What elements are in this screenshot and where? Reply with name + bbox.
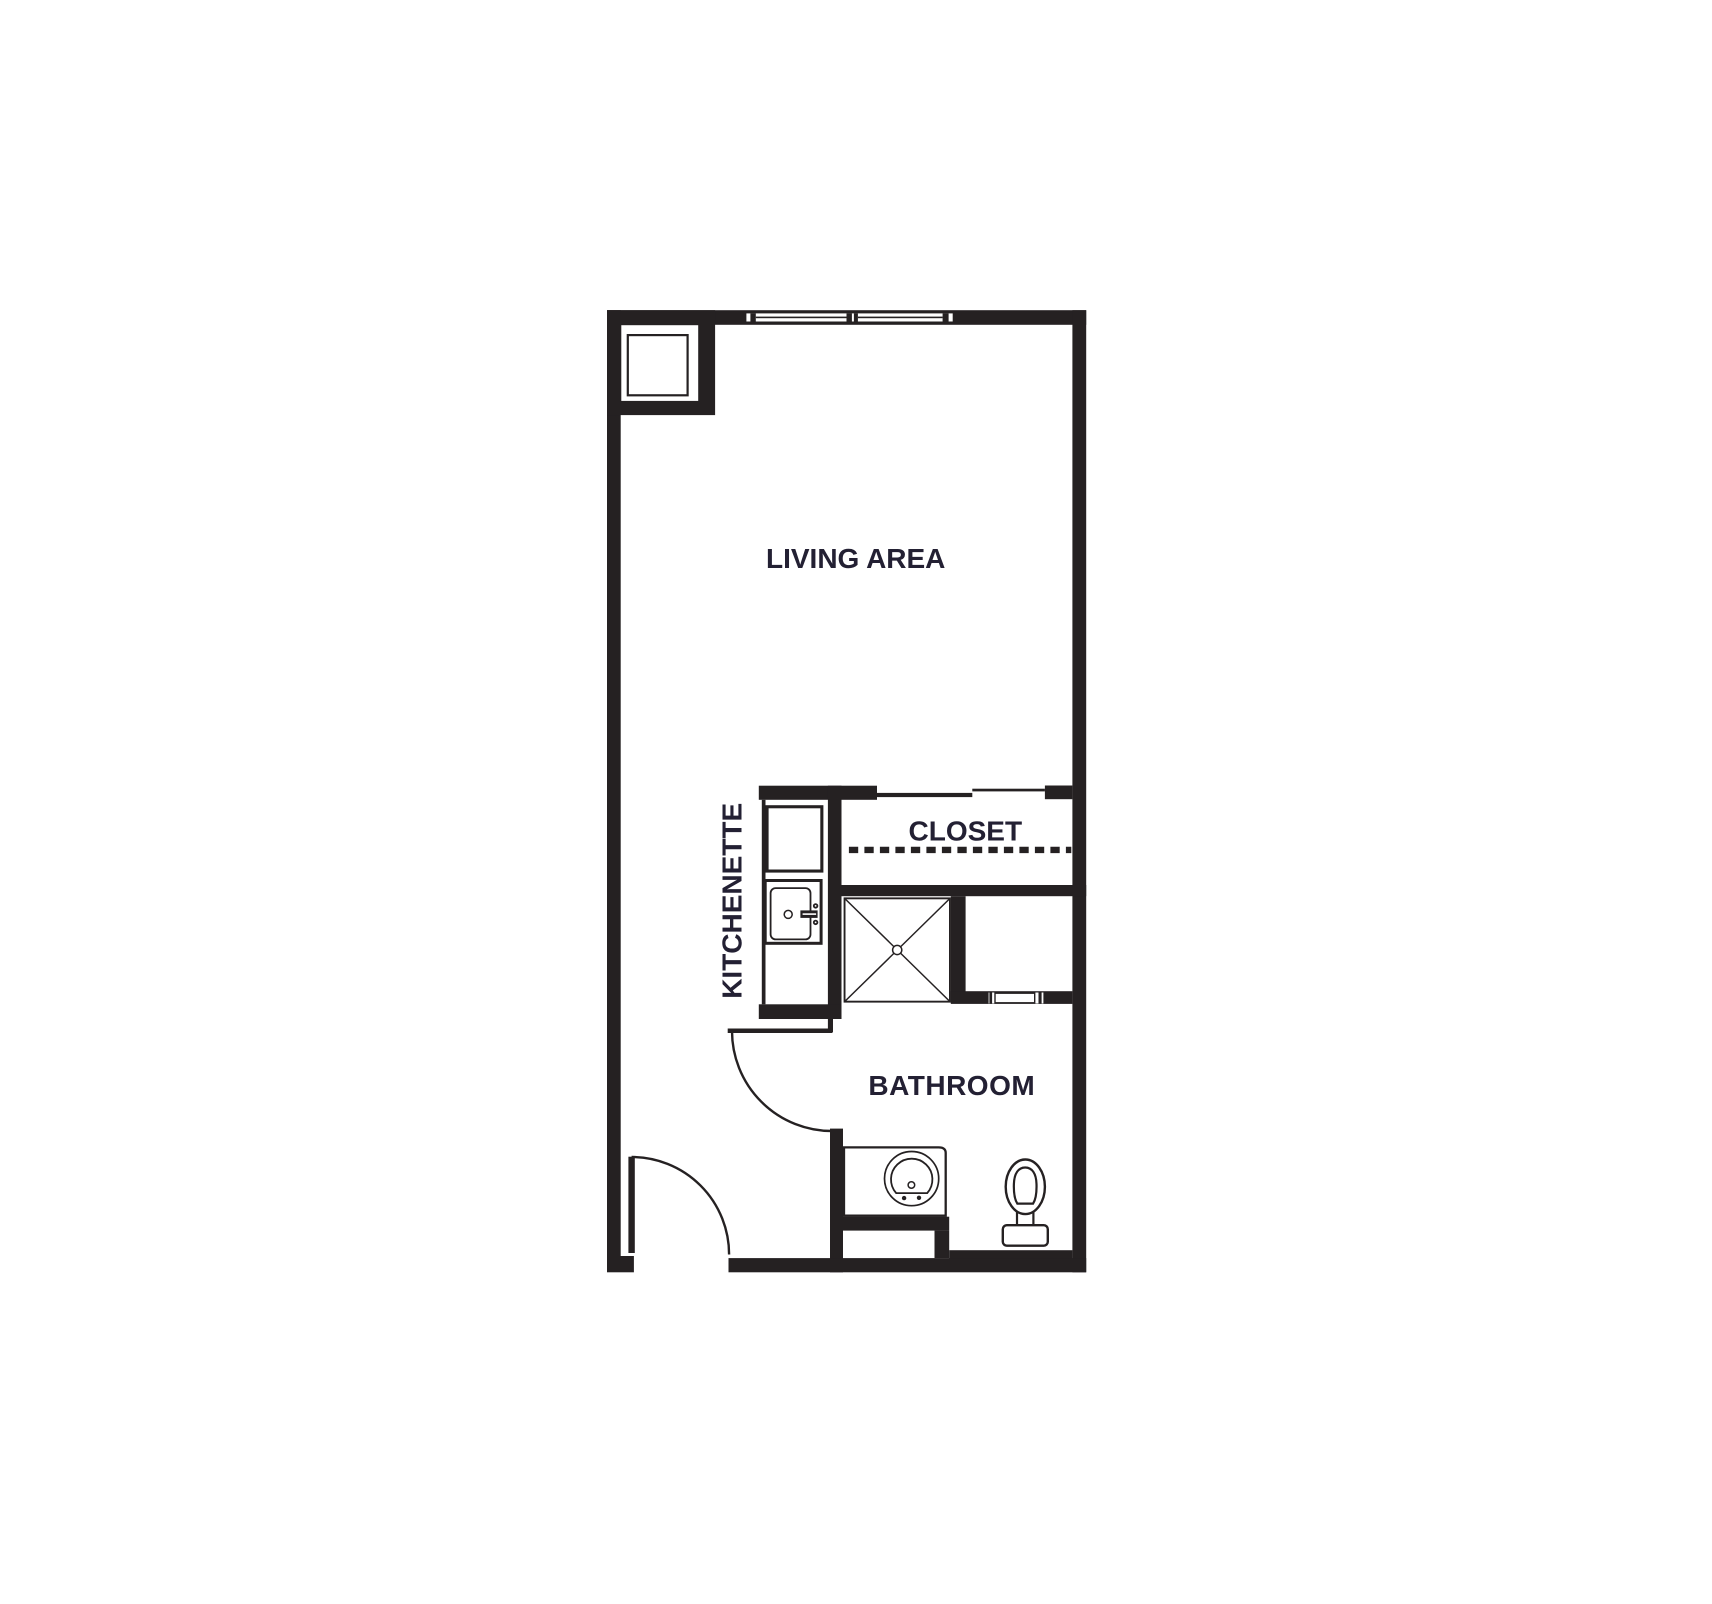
svg-text:BATHROOM: BATHROOM [868, 1070, 1035, 1101]
svg-text:LIVING AREA: LIVING AREA [766, 543, 945, 574]
svg-text:CLOSET: CLOSET [909, 816, 1023, 847]
svg-text:KITCHENETTE: KITCHENETTE [717, 803, 748, 999]
